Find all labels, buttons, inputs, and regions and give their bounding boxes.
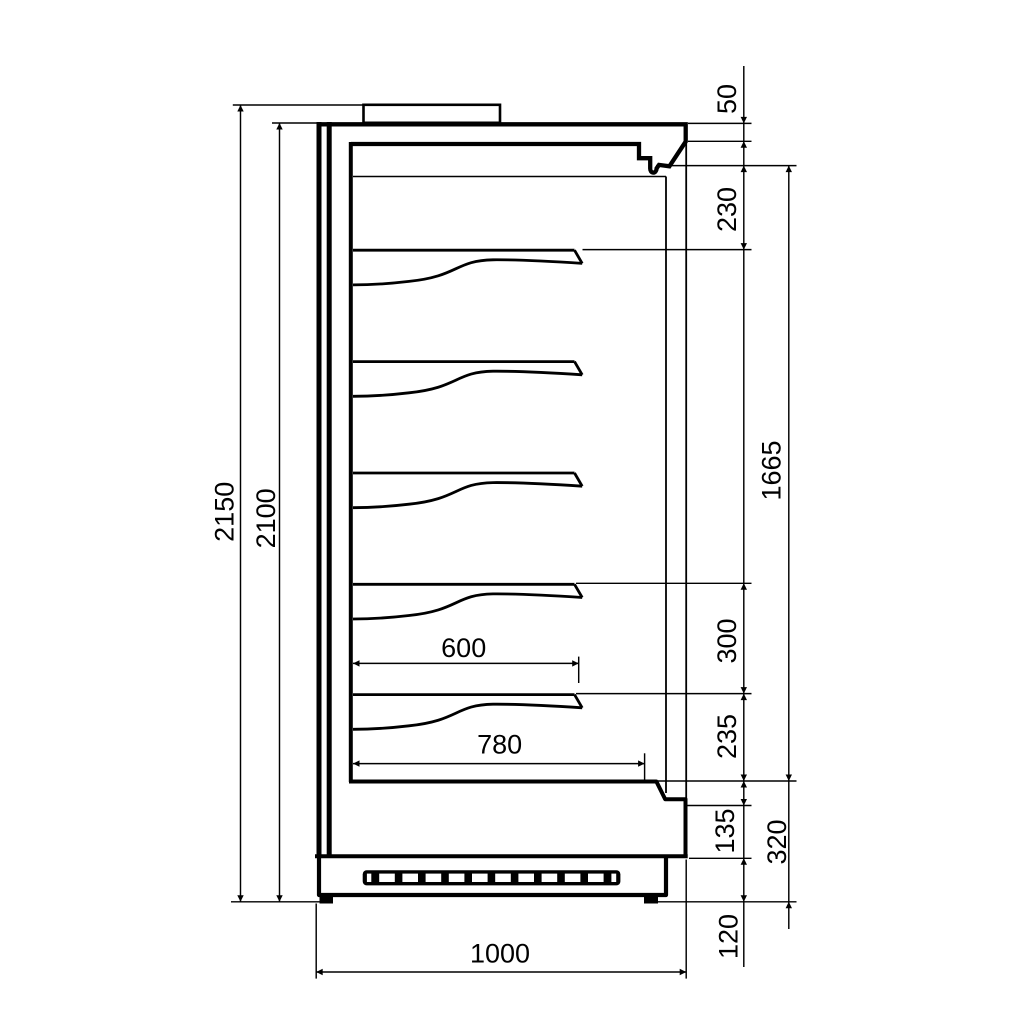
svg-text:320: 320	[762, 819, 792, 864]
svg-text:1000: 1000	[470, 939, 530, 969]
svg-text:235: 235	[712, 714, 742, 759]
svg-text:2100: 2100	[251, 488, 281, 548]
svg-text:120: 120	[714, 914, 744, 959]
svg-text:230: 230	[712, 187, 742, 232]
svg-text:780: 780	[477, 730, 522, 760]
svg-text:600: 600	[441, 633, 486, 663]
svg-text:135: 135	[710, 808, 740, 853]
svg-text:50: 50	[712, 84, 742, 114]
svg-text:2150: 2150	[210, 482, 240, 542]
svg-text:300: 300	[712, 618, 742, 663]
svg-text:1665: 1665	[756, 440, 786, 500]
